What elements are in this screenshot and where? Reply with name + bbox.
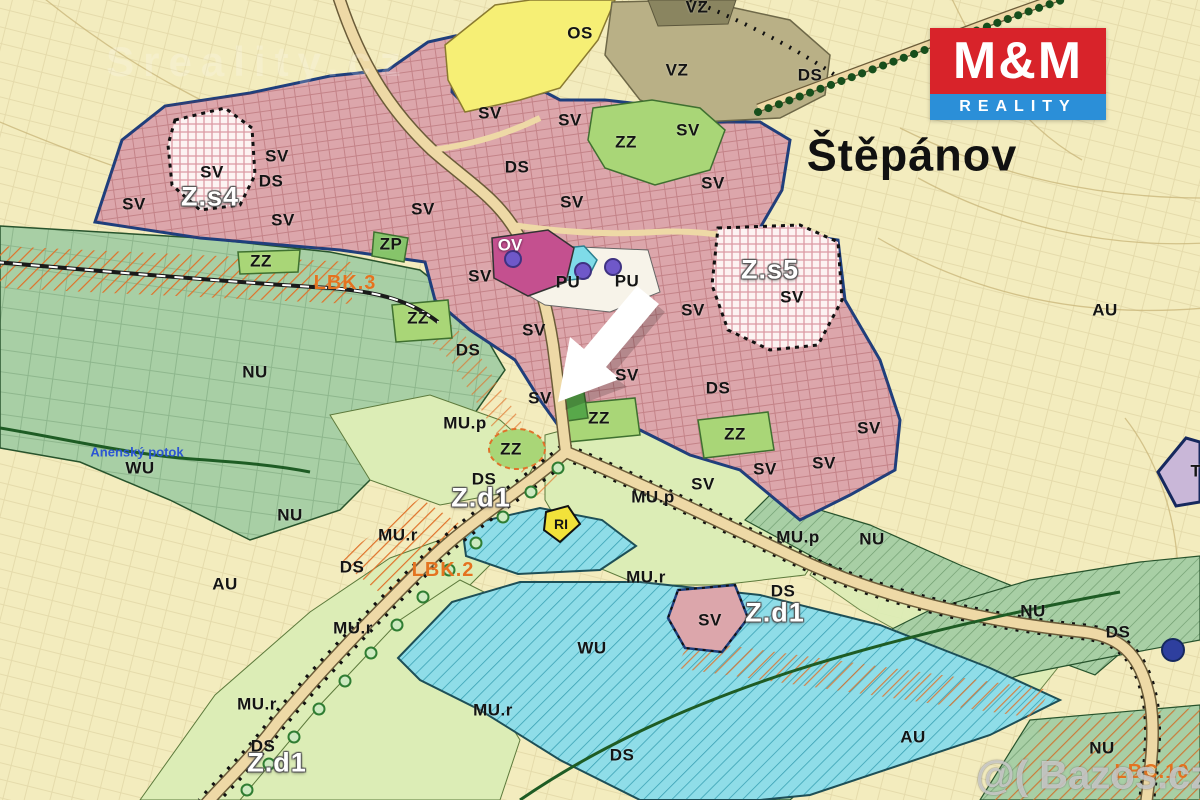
mm-reality-logo: M&M REALITY xyxy=(930,28,1106,120)
logo-top: M&M xyxy=(930,28,1106,94)
map-drawing xyxy=(0,0,1200,800)
zone-zs5 xyxy=(712,225,842,350)
logo-bottom: REALITY xyxy=(930,94,1106,120)
poi-marker-blue xyxy=(1162,639,1184,661)
zoning-map[interactable]: OSVZVZDSSVSVSVZZSVDSSVDSSVZ.s4SVSVSVSVZP… xyxy=(0,0,1200,800)
place-title: Štěpánov xyxy=(807,133,1018,178)
